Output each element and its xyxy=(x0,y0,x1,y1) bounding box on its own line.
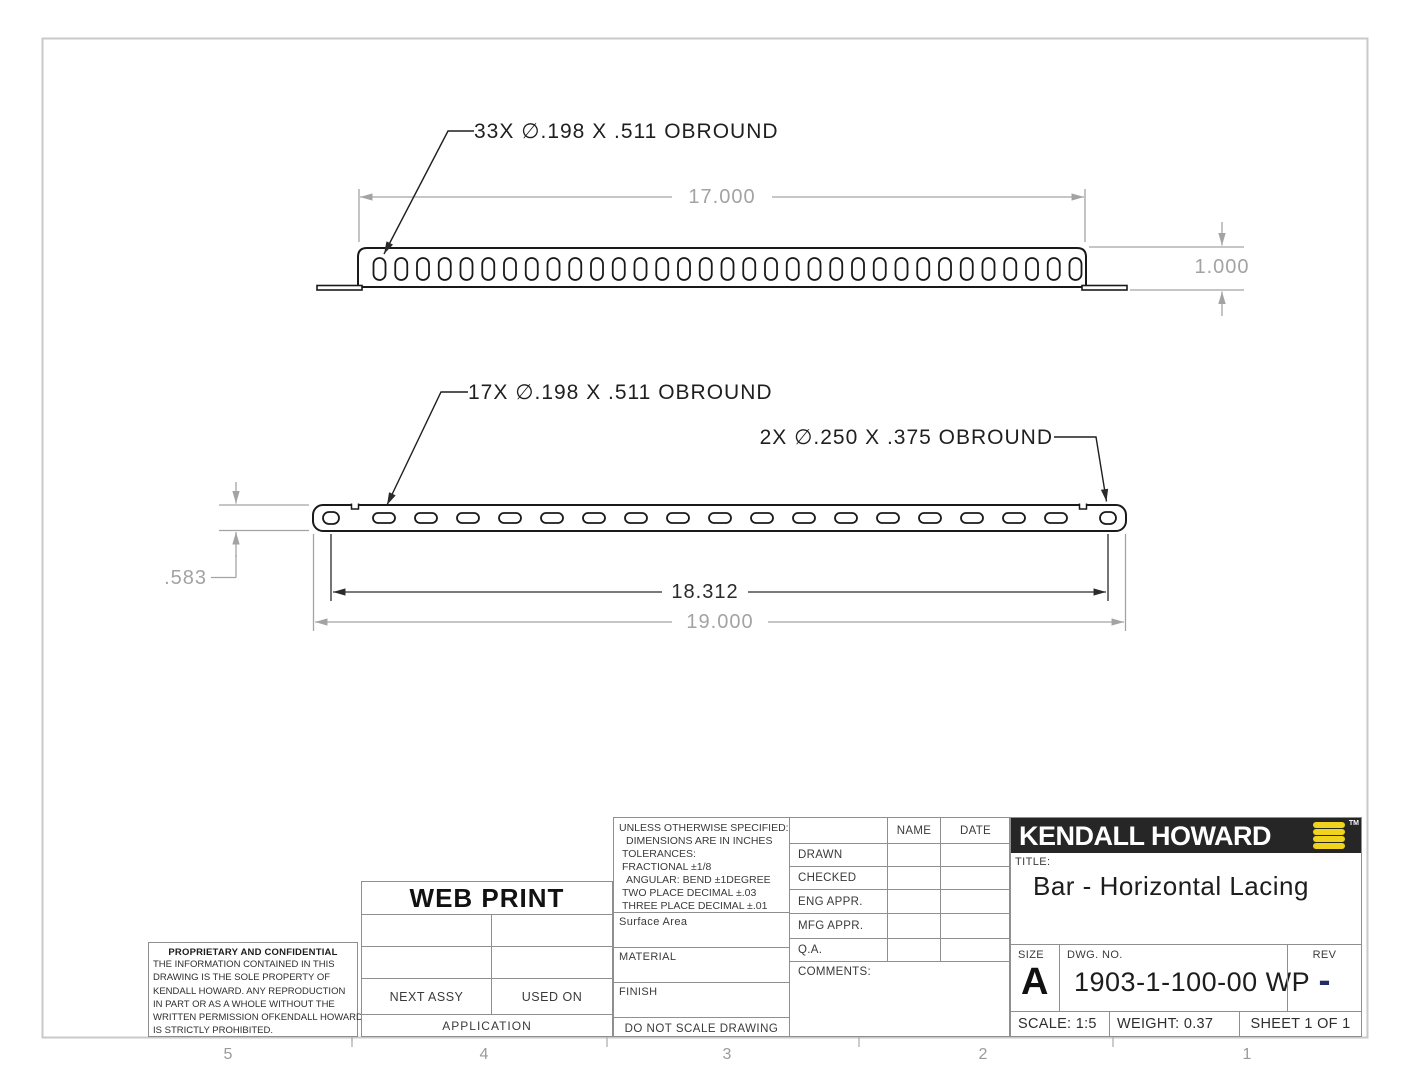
slot-hole xyxy=(700,258,712,280)
slot-hole xyxy=(830,258,842,280)
callout-front-end-holes: 2X ∅.250 X .375 OBROUND xyxy=(760,425,1053,450)
slot-hole xyxy=(709,513,731,523)
leader-33x xyxy=(384,131,474,254)
slot-hole xyxy=(1070,258,1082,280)
slot-hole xyxy=(656,258,668,280)
size-value: A xyxy=(1021,961,1048,1004)
slot-hole xyxy=(415,513,437,523)
next-assy-label: NEXT ASSY xyxy=(362,979,491,1014)
slot-hole xyxy=(961,513,983,523)
tolerance-line: FRACTIONAL ±1/8 xyxy=(622,861,789,874)
slot-hole xyxy=(835,513,857,523)
application-header-row: NEXT ASSY USED ON xyxy=(362,978,612,1014)
slot-hole xyxy=(877,513,899,523)
front-view-right-notch xyxy=(1080,504,1087,510)
application-label: APPLICATION xyxy=(362,1014,612,1036)
slot-hole xyxy=(919,513,941,523)
approval-row-mfg-appr: MFG APPR. xyxy=(790,913,887,938)
slot-hole xyxy=(896,258,908,280)
slot-hole xyxy=(499,513,521,523)
kendall-howard-bars-icon xyxy=(1313,822,1345,850)
application-table: WEB PRINT NEXT ASSY USED ON APPLICATION xyxy=(361,881,613,1037)
tolerance-line: ANGULAR: BEND ±1DEGREE xyxy=(626,874,789,887)
slot-hole xyxy=(1048,258,1060,280)
dim-17000-text: 17.000 xyxy=(688,186,755,209)
dim-19000-text: 19.000 xyxy=(686,611,753,634)
slot-hole xyxy=(1003,513,1025,523)
size-label: SIZE xyxy=(1018,949,1044,961)
tolerance-line: UNLESS OTHERWISE SPECIFIED: xyxy=(619,822,789,835)
leader-17x xyxy=(387,392,468,505)
slot-hole xyxy=(787,258,799,280)
rev-value: - xyxy=(1288,959,1361,1001)
material-label: MATERIAL xyxy=(619,951,676,963)
slot-hole xyxy=(635,258,647,280)
company-name: KENDALL HOWARD xyxy=(1019,821,1271,852)
finish-label: FINISH xyxy=(619,986,657,998)
front-view-slots xyxy=(373,513,1067,523)
callout-top-slots: 33X ∅.198 X .511 OBROUND xyxy=(474,119,779,144)
slot-hole xyxy=(583,513,605,523)
name-column-header: NAME xyxy=(887,818,940,843)
dwg-no-value: 1903-1-100-00 WP xyxy=(1074,967,1310,998)
slot-hole xyxy=(917,258,929,280)
top-view-left-flange xyxy=(317,286,362,291)
callout-front-slots: 17X ∅.198 X .511 OBROUND xyxy=(468,380,773,405)
weight-value: WEIGHT: 0.37 xyxy=(1109,1012,1239,1036)
leader-2x xyxy=(1054,437,1107,502)
zone-label-4: 4 xyxy=(480,1046,489,1064)
slot-hole xyxy=(373,513,395,523)
slot-hole xyxy=(983,258,995,280)
slot-hole xyxy=(809,258,821,280)
slot-hole xyxy=(541,513,563,523)
surface-area-label: Surface Area xyxy=(619,916,687,928)
front-view xyxy=(313,504,1126,532)
dim-1000-text: 1.000 xyxy=(1194,256,1249,279)
slot-hole xyxy=(874,258,886,280)
slot-hole xyxy=(548,258,560,280)
slot-hole xyxy=(439,258,451,280)
top-view-right-flange xyxy=(1082,286,1127,291)
sheet-value: SHEET 1 OF 1 xyxy=(1239,1012,1361,1036)
top-view xyxy=(317,248,1127,290)
slot-hole xyxy=(625,513,647,523)
slot-hole xyxy=(417,258,429,280)
slot-hole xyxy=(939,258,951,280)
application-empty-row xyxy=(362,914,612,946)
tolerance-line: TOLERANCES: xyxy=(622,848,789,861)
approval-row-eng-appr: ENG APPR. xyxy=(790,889,887,913)
proprietary-block: PROPRIETARY AND CONFIDENTIAL THE INFORMA… xyxy=(148,942,358,1037)
tolerance-line: TWO PLACE DECIMAL ±.03 xyxy=(622,887,789,900)
company-logo: KENDALL HOWARD TM xyxy=(1011,818,1361,853)
proprietary-line: IN PART OR AS A WHOLE WITHOUT THE xyxy=(153,998,357,1011)
slot-hole xyxy=(961,258,973,280)
slot-hole xyxy=(526,258,538,280)
approval-row-qa: Q.A. xyxy=(790,938,887,961)
slot-hole xyxy=(613,258,625,280)
proprietary-line: DRAWING IS THE SOLE PROPERTY OF xyxy=(153,971,357,984)
proprietary-line: THE INFORMATION CONTAINED IN THIS xyxy=(153,958,357,971)
slot-hole xyxy=(751,513,773,523)
slot-hole xyxy=(591,258,603,280)
slot-hole xyxy=(1045,513,1067,523)
slot-hole xyxy=(395,258,407,280)
tolerance-line: DIMENSIONS ARE IN INCHES xyxy=(626,835,789,848)
proprietary-heading: PROPRIETARY AND CONFIDENTIAL xyxy=(149,947,357,958)
slot-hole xyxy=(323,512,339,524)
dim-18312-text: 18.312 xyxy=(671,581,738,604)
used-on-label: USED ON xyxy=(491,979,612,1014)
slot-hole xyxy=(793,513,815,523)
trademark-symbol: TM xyxy=(1349,820,1359,827)
slot-hole xyxy=(1004,258,1016,280)
slot-hole xyxy=(457,513,479,523)
approvals-table: NAME DATE DRAWN CHECKED ENG APPR. MFG AP… xyxy=(790,817,1010,1037)
approval-row-drawn: DRAWN xyxy=(790,843,887,866)
dim-583-text: .583 xyxy=(164,567,207,590)
slot-hole xyxy=(504,258,516,280)
tolerance-notes: UNLESS OTHERWISE SPECIFIED: DIMENSIONS A… xyxy=(614,818,789,912)
proprietary-line: KENDALL HOWARD. ANY REPRODUCTION xyxy=(153,985,357,998)
slot-hole xyxy=(667,513,689,523)
drawing-title: Bar - Horizontal Lacing xyxy=(1033,871,1309,902)
do-not-scale-label: DO NOT SCALE DRAWING xyxy=(614,1017,789,1040)
slot-hole xyxy=(1100,512,1116,524)
slot-hole xyxy=(765,258,777,280)
zone-label-3: 3 xyxy=(723,1046,732,1064)
title-block: KENDALL HOWARD TM TITLE: Bar - Horizonta… xyxy=(1010,817,1362,1037)
application-empty-row xyxy=(362,946,612,978)
comments-label: COMMENTS: xyxy=(790,961,1010,1036)
scale-value: SCALE: 1:5 xyxy=(1011,1012,1109,1036)
zone-label-5: 5 xyxy=(224,1046,233,1064)
zone-label-2: 2 xyxy=(979,1046,988,1064)
slot-hole xyxy=(743,258,755,280)
dwg-no-label: DWG. NO. xyxy=(1067,949,1123,961)
slot-hole xyxy=(722,258,734,280)
dim-583-lines xyxy=(211,482,309,578)
slot-hole xyxy=(1026,258,1038,280)
zone-label-1: 1 xyxy=(1243,1046,1252,1064)
slot-hole xyxy=(374,258,386,280)
proprietary-line: IS STRICTLY PROHIBITED. xyxy=(153,1024,357,1037)
slot-hole xyxy=(482,258,494,280)
approval-row-checked: CHECKED xyxy=(790,866,887,889)
web-print-watermark: WEB PRINT xyxy=(362,882,612,914)
tolerance-column: UNLESS OTHERWISE SPECIFIED: DIMENSIONS A… xyxy=(613,817,790,1037)
title-label: TITLE: xyxy=(1015,856,1050,868)
date-column-header: DATE xyxy=(940,818,1010,843)
front-view-left-notch xyxy=(352,504,359,510)
slot-hole xyxy=(461,258,473,280)
proprietary-line: WRITTEN PERMISSION OFKENDALL HOWARD xyxy=(153,1011,357,1024)
slot-hole xyxy=(569,258,581,280)
slot-hole xyxy=(678,258,690,280)
slot-hole xyxy=(852,258,864,280)
